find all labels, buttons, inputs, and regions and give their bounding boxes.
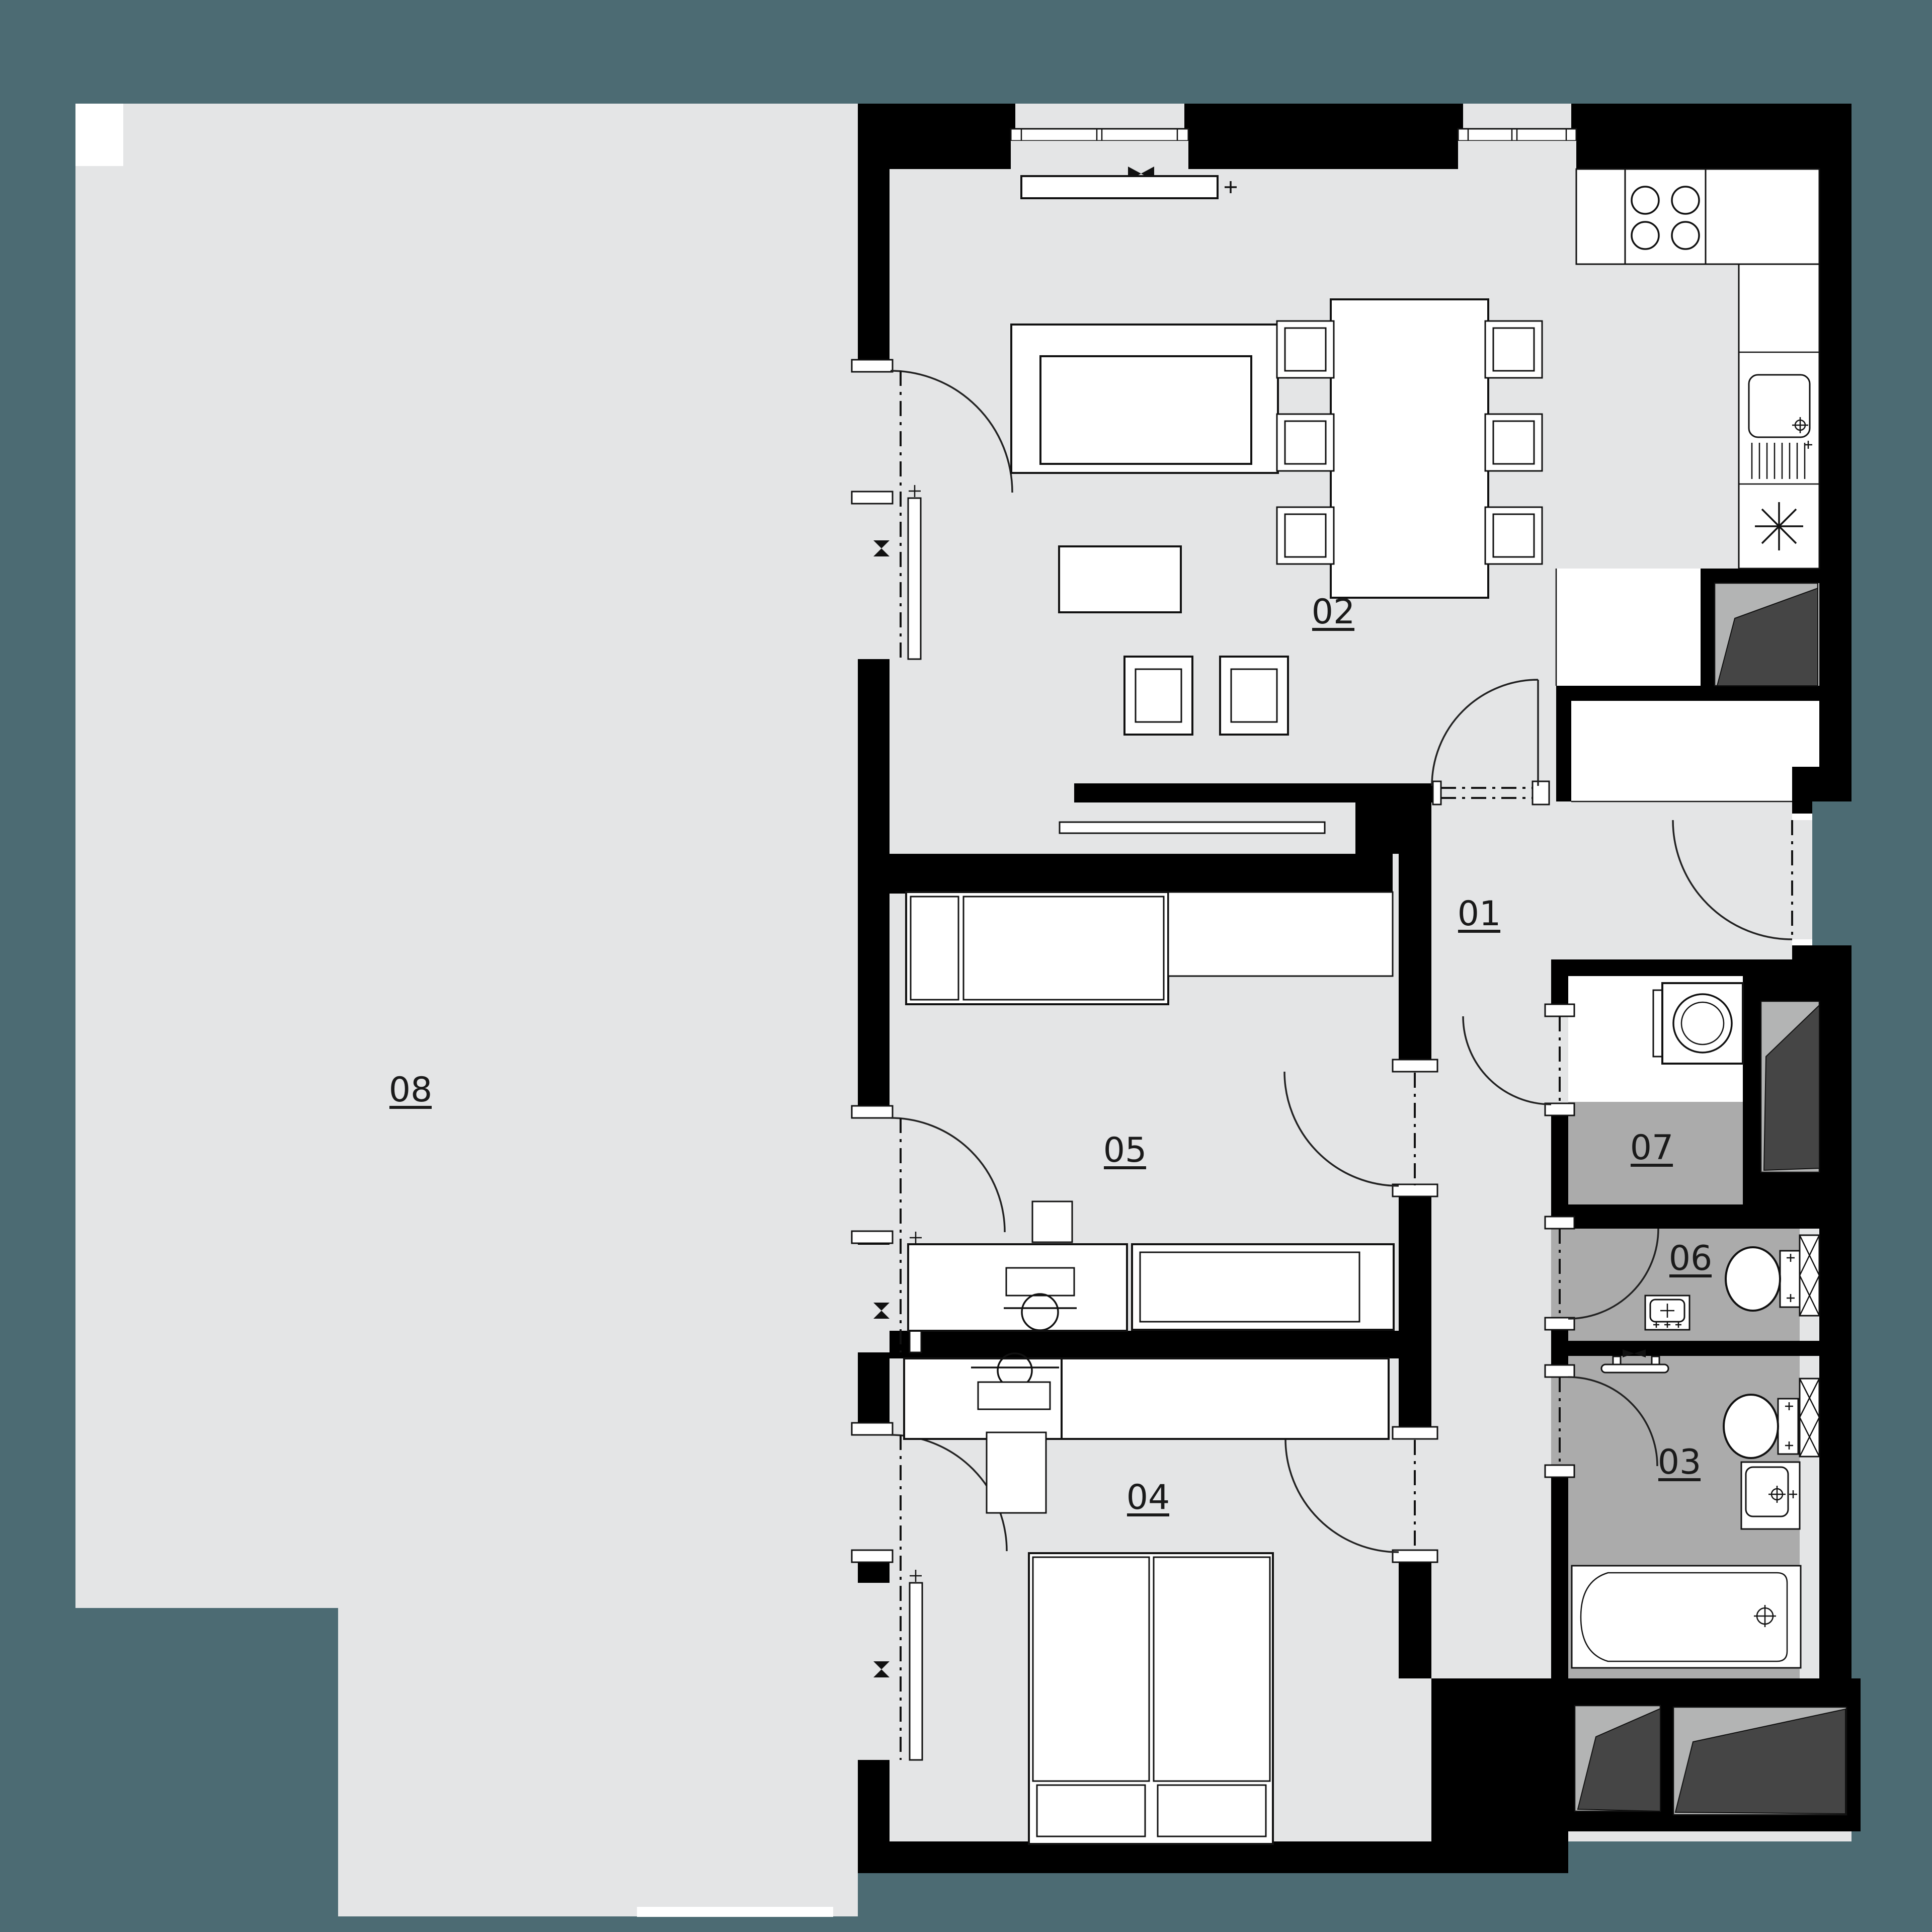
niche-left-wall <box>1556 701 1571 801</box>
living-window-leaf <box>908 498 921 659</box>
monitor <box>978 1382 1050 1409</box>
living-bedroom05-wall <box>890 854 1393 894</box>
armchair-seat <box>1231 669 1277 722</box>
wall-06-03 <box>1551 1341 1819 1356</box>
wall-connector <box>1355 802 1399 854</box>
toilet-bowl <box>1724 1395 1778 1458</box>
room-label-02: 02 <box>1312 592 1355 632</box>
room-label-06: 06 <box>1669 1239 1713 1278</box>
stove <box>1625 169 1706 264</box>
armchair-seat <box>1136 669 1181 722</box>
room-label-08: 08 <box>389 1070 433 1110</box>
dining-table <box>1331 299 1488 598</box>
kitchen-window <box>1458 104 1576 169</box>
pillow <box>1037 1785 1145 1836</box>
mattress <box>963 897 1164 1000</box>
coffee-table <box>1059 546 1181 612</box>
room-label-05: 05 <box>1103 1131 1147 1170</box>
appliance-star-icon <box>1755 502 1803 550</box>
south-shaft-right <box>1673 1707 1846 1815</box>
wardrobe <box>1062 1358 1389 1439</box>
terrace-corner-column <box>75 104 123 166</box>
room-label-01: 01 <box>1458 894 1501 934</box>
room-label-07: 07 <box>1630 1128 1674 1168</box>
utility-07 <box>1653 983 1743 1064</box>
monitor <box>1006 1268 1074 1296</box>
room04-window-leaf <box>910 1583 922 1760</box>
mattress <box>1154 1557 1270 1781</box>
stool <box>1032 1201 1072 1242</box>
sideboard <box>1060 822 1325 833</box>
closet <box>1168 892 1393 976</box>
utility-07-north-wall <box>1551 959 1852 976</box>
towel-rail <box>1601 1364 1668 1373</box>
terrace-step-marker <box>637 1907 833 1917</box>
south-wall <box>858 1841 1568 1873</box>
kitchen-shaft <box>1715 583 1818 686</box>
floor-plan-page: 01 02 03 04 05 06 07 08 <box>0 0 1932 1932</box>
shaft2-bottom-band <box>1761 1172 1819 1204</box>
east-wall-lower <box>1819 976 1852 1678</box>
toilet-bowl <box>1726 1247 1780 1311</box>
room-label-03: 03 <box>1658 1442 1702 1482</box>
kitchen-tall-cabinet-zone <box>1556 569 1701 686</box>
mattress <box>1033 1557 1149 1781</box>
east-wall-upper <box>1819 104 1852 785</box>
shaft1-bottom-band <box>1556 686 1819 701</box>
bathtub <box>1572 1566 1801 1668</box>
north-wall <box>858 104 1852 169</box>
pillow <box>911 897 958 1000</box>
shaft1-left-band <box>1701 583 1715 686</box>
wall-07-06 <box>1551 1204 1819 1229</box>
pillow <box>1158 1785 1266 1836</box>
hall-closet-niche <box>1571 701 1819 801</box>
sofa-seat <box>1040 356 1251 464</box>
bedroom05-bedroom04-wall <box>890 1331 1431 1358</box>
utility-07-right-wall <box>1743 976 1761 1204</box>
utility-shaft <box>1761 1001 1819 1172</box>
living-hall-wall <box>1074 783 1440 802</box>
entrance-jog <box>1792 767 1819 785</box>
shaft1-top-band <box>1701 569 1819 583</box>
nightstand <box>987 1432 1046 1513</box>
floor-plan-canvas: 01 02 03 04 05 06 07 08 <box>0 0 1932 1932</box>
radiator <box>1021 176 1218 198</box>
washing-machine <box>1662 983 1743 1064</box>
shaft2-top-band <box>1761 976 1819 1001</box>
south-shaft-left <box>1575 1706 1660 1811</box>
entrance-outside <box>1812 801 1861 945</box>
room-label-04: 04 <box>1126 1478 1170 1517</box>
